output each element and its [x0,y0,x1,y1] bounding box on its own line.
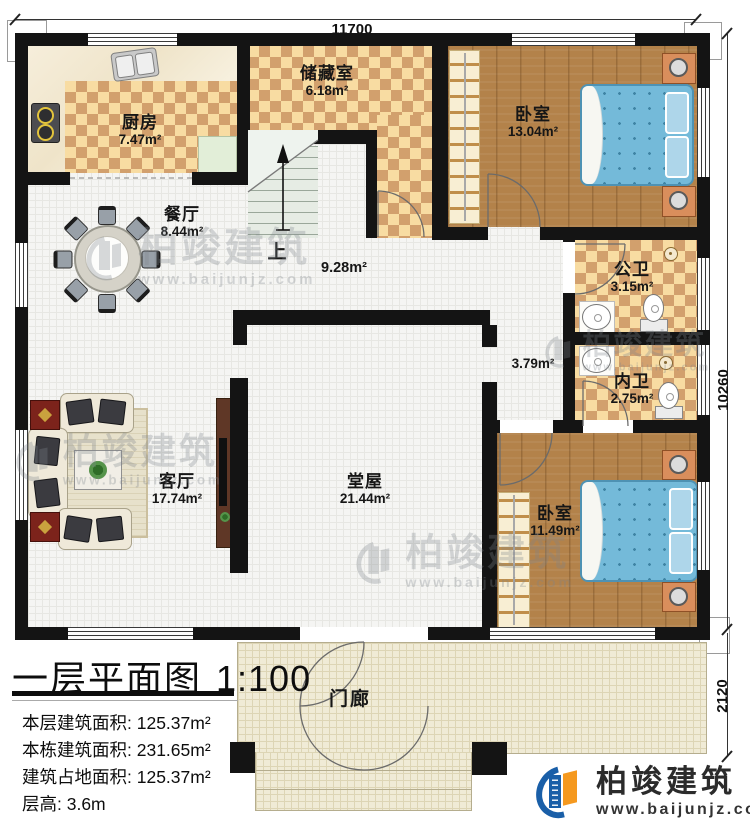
title-underline [12,691,234,696]
window-dining-left [15,243,28,307]
wall-hall-right-a [482,325,497,347]
info-building-area: 本栋建筑面积: 231.65m² [22,737,211,762]
wall-kitchen-bottom-right [192,172,250,185]
floor-plan-canvas: 11700 10260 2120 [0,0,750,836]
lamp-icon [669,455,688,474]
company-url: www.baijunjz.com [596,801,750,819]
room-label-private-bath: 内卫 2.75m² [572,372,692,406]
bedroom-top-bed [580,84,694,186]
side-table-bottom [30,512,60,542]
porch-pillar-right [472,742,507,775]
title-underline-thin [12,700,238,701]
wall-hall-top [233,310,490,325]
window-bedroom-bottom [490,627,655,640]
side-table-top [30,400,60,430]
public-bath-sink [582,304,611,330]
kitchen-fridge [198,136,237,174]
door-gap-private-bath [583,420,633,433]
dining-chair [98,294,116,313]
sofa-pillow [63,515,92,543]
wall-bedroom-top-bottom-a [432,227,488,240]
info-floor-height: 层高: 3.6m [22,791,106,816]
bed-pillow [665,136,689,178]
watermark-logo-icon [545,334,577,369]
sofa-pillow [98,399,127,426]
dining-chair [54,251,73,269]
watermark-logo-icon [356,540,398,586]
watermark-logo-icon [16,439,56,482]
lamp-icon [669,587,688,606]
company-logo: 柏竣建筑 www.baijunjz.com [536,764,750,820]
toilet-bowl [643,294,664,322]
bedroom-bottom-nightstand-2 [662,582,696,612]
window-bedroom-top [512,33,635,46]
wall-storage-bottom [237,130,367,144]
company-name: 柏竣建筑 [596,766,750,797]
window-kitchen [88,33,177,46]
room-label-storage: 储藏室 6.18m² [267,64,387,98]
window-bedroom-bottom-right [697,482,710,570]
bed-pillow [665,92,689,134]
dim-line-right [727,33,728,630]
window-public-bath [697,258,710,330]
dim-right-value: 10260 [715,350,731,430]
floor-drain-icon [664,247,678,261]
porch-steps [255,752,472,811]
wall-kitchen-storage [237,33,250,185]
bedroom-top-nightstand-1 [662,53,696,84]
stove-burner-2 [37,124,54,141]
storage-corridor-floor [377,115,432,238]
watermark: 柏竣建筑 www.baijunjz.com [86,228,315,288]
kitchen-stove [31,103,60,143]
public-bath-toilet [640,294,667,332]
dim-line-top [15,19,696,20]
room-label-bedroom-top: 卧室 13.04m² [473,105,593,139]
dining-chair [98,206,116,225]
door-gap-porch-entry [300,627,428,640]
window-bedroom-top-right [697,88,710,177]
watermark-logo-icon [86,234,130,282]
dim-bottom-right-value: 2120 [714,656,730,736]
watermark: 柏竣建筑 www.baijunjz.com [545,330,710,373]
watermark: 柏竣建筑 www.baijunjz.com [356,534,574,591]
wall-left [15,33,28,640]
stairs-floor [248,146,318,238]
door-gap-bedroom-bottom [500,420,553,433]
lamp-icon [669,58,688,77]
info-floor-area: 本层建筑面积: 125.37m² [22,710,211,735]
sofa-pillow [65,398,94,425]
wall-kitchen-bottom-left [15,172,70,185]
porch-pillar-left [230,742,255,773]
sofa-top [60,393,134,433]
bed-pillow [669,532,693,574]
watermark: 柏竣建筑 www.baijunjz.com [16,434,223,488]
wall-storage-corridor [366,130,377,238]
bedroom-top-nightstand-2 [662,186,696,217]
sink-basin-left [115,54,136,78]
info-footprint-area: 建筑占地面积: 125.37m² [22,764,211,789]
lamp-icon [669,191,688,210]
bed-pillow [669,488,693,530]
company-logo-icon [536,764,586,820]
stove-burner-1 [37,107,54,124]
room-label-hall: 堂屋 21.44m² [305,472,425,506]
wall-bedroom-top-left [432,33,448,240]
room-label-public-bath: 公卫 3.15m² [572,260,692,294]
wall-bedroom-top-bottom-b [540,227,697,240]
window-living-bottom [68,627,193,640]
bedroom-bottom-nightstand-1 [662,450,696,480]
cabinet-plant-icon [220,512,230,522]
room-label-kitchen: 厨房 7.47m² [80,113,200,147]
sofa-pillow [96,516,124,543]
sink-basin-right [135,51,156,75]
sofa-bottom [58,508,132,550]
